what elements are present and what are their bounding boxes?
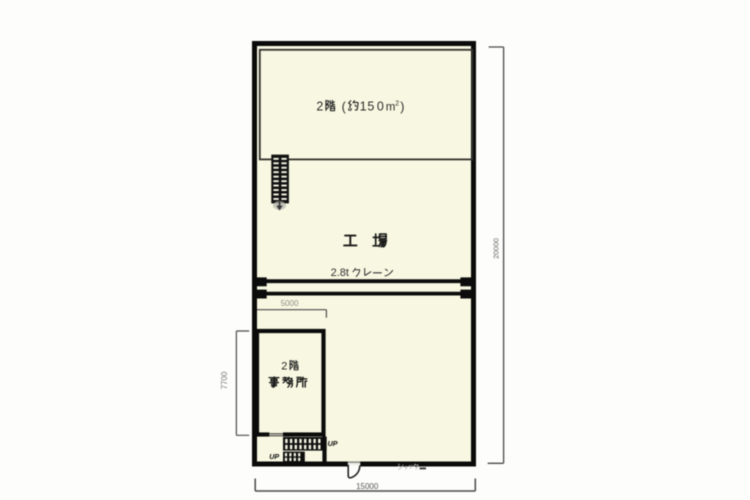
svg-text:0: 0	[377, 100, 384, 114]
svg-text:2: 2	[281, 361, 287, 373]
svg-text:5: 5	[367, 100, 374, 114]
svg-text:1: 1	[360, 100, 367, 114]
svg-text:): )	[400, 100, 404, 114]
svg-text:20000: 20000	[491, 238, 500, 259]
svg-text:2: 2	[316, 100, 323, 114]
svg-text:UP: UP	[269, 452, 279, 461]
svg-text:UP: UP	[328, 439, 338, 448]
svg-text:7700: 7700	[220, 371, 229, 389]
svg-text:m: m	[386, 102, 396, 114]
svg-text:5000: 5000	[281, 299, 299, 308]
svg-text:15000: 15000	[356, 482, 379, 491]
svg-text:2.8t: 2.8t	[331, 267, 349, 279]
svg-text:2: 2	[395, 101, 399, 108]
